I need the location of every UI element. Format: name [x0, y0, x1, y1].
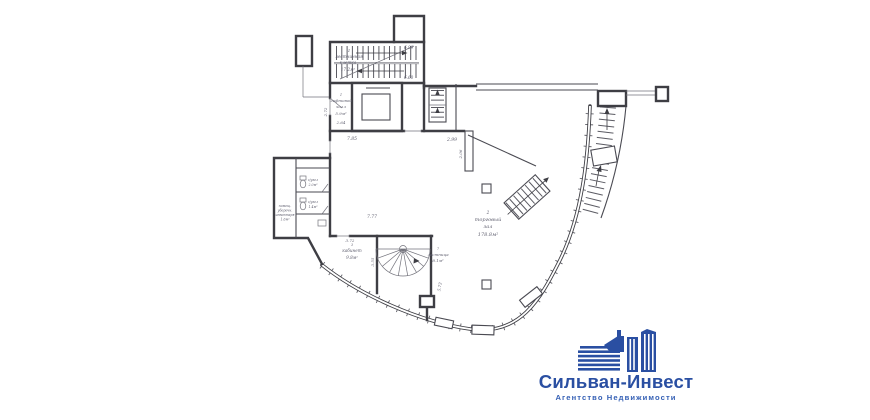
room-area: 178.8м² — [478, 232, 498, 238]
toilet-tank — [300, 176, 306, 180]
exterior-stair-mid-landing — [591, 146, 617, 166]
room-name: лестница — [427, 252, 449, 257]
room-number: 3 — [351, 243, 353, 247]
room-name: холл — [336, 104, 346, 109]
room-name: лифтовой — [330, 98, 352, 103]
dim-label: 6.60 — [404, 75, 414, 80]
logo-subtitle: Агентство Недвижимости — [555, 393, 676, 402]
toilet-tank — [300, 198, 306, 202]
room-label-wc-upper: с/узел 2.0м² — [308, 178, 319, 187]
scanned-floor-plan-page: 1 лестничная клетка 17.2м² 1 лифтовой хо… — [0, 0, 870, 420]
diagonal-partition — [468, 135, 536, 166]
dim-label: 5.73 — [436, 281, 443, 291]
toilet-bowl — [300, 202, 306, 210]
room-label-wc-lower: с/узел 1.4м² — [308, 200, 318, 209]
hall-interior-stair — [500, 169, 556, 222]
floor-plan: 1 лестничная клетка 17.2м² 1 лифтовой хо… — [274, 16, 668, 335]
stair-arrow-icon — [605, 108, 610, 114]
column — [482, 184, 491, 193]
dim-label: 3.55 — [370, 257, 375, 266]
floor-plan-image: 1 лестничная клетка 17.2м² 1 лифтовой хо… — [0, 0, 870, 420]
room-name: с/узел — [308, 200, 318, 204]
spiral-outer-arc — [376, 249, 430, 276]
sink — [318, 220, 326, 226]
corridor-walls — [330, 131, 536, 171]
room-number: 1 — [340, 93, 342, 97]
room-area: 17.2м² — [341, 67, 356, 72]
room-area: 8.1м² — [432, 258, 444, 263]
dim-label: 2.06 — [458, 149, 463, 159]
elevator-shaft — [352, 83, 402, 131]
logo: Сильван-Инвест Агентство Недвижимости — [539, 329, 693, 402]
room-name: с/узел — [308, 178, 318, 182]
stair-arrow-icon — [402, 51, 408, 56]
facade-door-1 — [434, 317, 453, 329]
wall-pier — [420, 296, 434, 307]
dim-label: 6.99 — [404, 45, 414, 50]
room-number: 1 — [348, 48, 351, 53]
room-area: 1.6м² — [281, 218, 291, 222]
room-name: инвентаря — [275, 213, 294, 217]
stair-arrow-line — [596, 170, 599, 186]
room-name: кабинет — [342, 248, 361, 253]
room-label-cabinet: 3 кабинет 9.8м² — [342, 243, 361, 260]
room-area: 9.8м² — [346, 255, 358, 260]
dim-label: 2.72 — [323, 107, 328, 117]
room-label-trade-hall: 2 торговый зал 178.8м² — [475, 210, 502, 238]
dim-label: 7.85 — [347, 136, 357, 142]
room-name: уборочн. — [277, 209, 293, 213]
stair-arrow-icon — [414, 258, 420, 264]
exterior-stair-top-landing — [598, 91, 626, 106]
room-label-lift-hall: 1 лифтовой холл 5.9м² — [330, 93, 352, 116]
room-name: клетка — [340, 60, 357, 65]
left-pilaster — [296, 36, 312, 66]
dim-label: 2.99 — [446, 137, 457, 143]
room-name: лестничная — [335, 54, 363, 59]
right-stub-pier — [656, 87, 668, 101]
room-name: торговый — [475, 217, 502, 223]
room-label-staircase: 1 лестничная клетка 17.2м² — [335, 48, 363, 72]
column — [482, 280, 491, 289]
facade-door-3 — [520, 287, 543, 308]
logo-title: Сильван-Инвест — [539, 371, 693, 392]
stair-arrow-icon — [435, 108, 439, 114]
facade-door-2 — [472, 325, 494, 335]
room-area: 2.0м² — [308, 183, 319, 187]
right-stub-lines — [626, 91, 658, 95]
north-wall — [424, 84, 668, 101]
dim-label: 2.64 — [336, 120, 346, 125]
exterior-stair — [590, 91, 626, 218]
dim-label: 7.77 — [367, 214, 377, 220]
logo-buildings-icon — [578, 329, 656, 372]
spiral-staircase — [376, 246, 430, 277]
room-label-cleaning: помещ. уборочн. инвентаря 1.6м² — [275, 204, 294, 222]
spiral-treads — [376, 249, 430, 276]
roof-bump — [394, 16, 424, 42]
dim-label: 3.72 — [346, 238, 355, 243]
room-name: помещ. — [279, 204, 292, 208]
toilet-bowl — [300, 180, 306, 188]
room-number: 2 — [486, 210, 490, 215]
door-leaf-lines — [322, 184, 328, 214]
porch-lines — [303, 66, 329, 97]
room-name: зал — [484, 224, 493, 230]
room-number: 7 — [437, 247, 440, 251]
room-area: 1.4м² — [309, 205, 319, 209]
room-area: 5.9м² — [335, 111, 347, 116]
window-band — [476, 84, 598, 90]
elevator-core — [330, 83, 456, 236]
